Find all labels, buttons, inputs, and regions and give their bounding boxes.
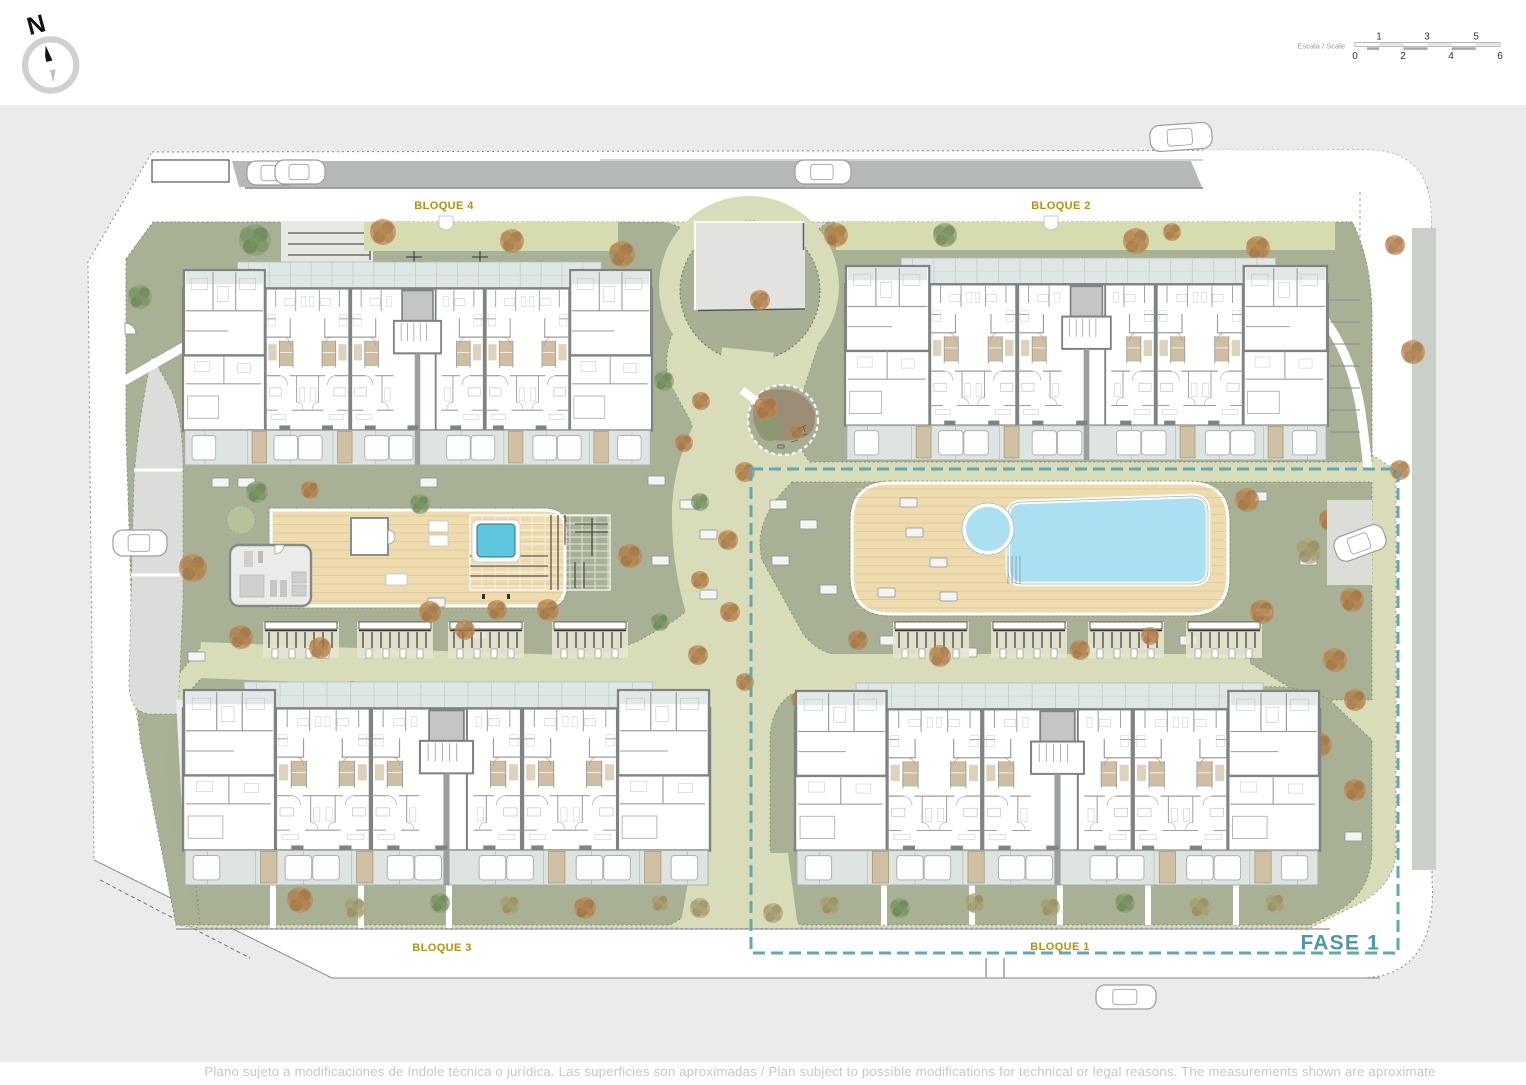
svg-text:FASE 1: FASE 1 — [1300, 932, 1380, 955]
svg-text:BLOQUE 1: BLOQUE 1 — [1030, 941, 1089, 953]
svg-text:Escala / Scale: Escala / Scale — [1297, 42, 1345, 51]
svg-text:6: 6 — [1497, 51, 1503, 62]
svg-text:2: 2 — [1400, 51, 1406, 62]
svg-text:4: 4 — [1448, 51, 1454, 62]
svg-text:BLOQUE 3: BLOQUE 3 — [412, 942, 471, 954]
svg-text:1: 1 — [1376, 32, 1382, 43]
svg-text:BLOQUE 4: BLOQUE 4 — [414, 200, 474, 212]
svg-text:3: 3 — [1424, 32, 1430, 43]
svg-text:Plano sujeto a modificaciones: Plano sujeto a modificaciones de índole … — [204, 1064, 1435, 1079]
svg-text:0: 0 — [1352, 51, 1358, 62]
svg-text:5: 5 — [1473, 32, 1479, 43]
svg-text:BLOQUE 2: BLOQUE 2 — [1031, 200, 1090, 212]
